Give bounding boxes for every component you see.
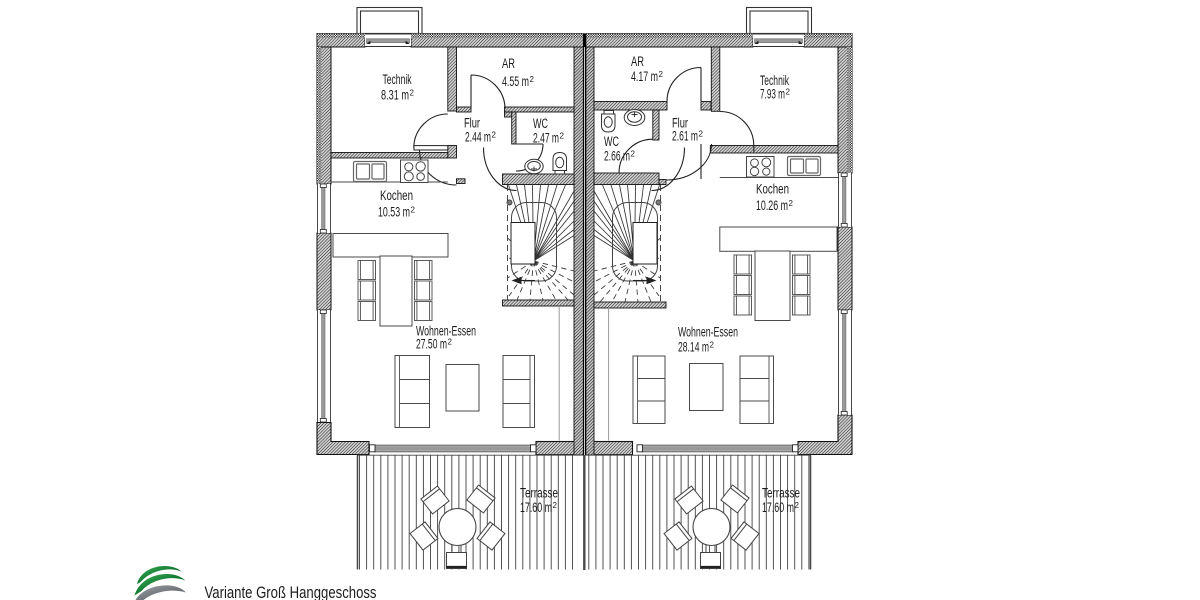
svg-text:Kochen: Kochen	[380, 188, 413, 203]
svg-text:2.61 m: 2.61 m	[672, 129, 698, 144]
svg-text:2: 2	[448, 338, 453, 347]
svg-text:2: 2	[530, 75, 535, 84]
svg-text:2: 2	[659, 70, 664, 79]
svg-text:Technik: Technik	[383, 72, 412, 87]
svg-text:Flur: Flur	[464, 116, 480, 131]
svg-text:2.47 m: 2.47 m	[533, 131, 559, 146]
svg-text:8.31 m: 8.31 m	[381, 88, 409, 103]
svg-text:2: 2	[560, 132, 565, 141]
svg-text:2: 2	[699, 130, 704, 139]
svg-text:WC: WC	[604, 134, 619, 149]
svg-text:2: 2	[710, 341, 715, 350]
svg-text:2: 2	[786, 88, 791, 97]
svg-text:2: 2	[631, 150, 636, 159]
svg-text:2.66 m: 2.66 m	[604, 149, 630, 164]
svg-text:10.53 m: 10.53 m	[378, 205, 410, 220]
svg-text:AR: AR	[502, 56, 515, 71]
svg-text:27.50 m: 27.50 m	[416, 337, 447, 352]
svg-text:Terrasse: Terrasse	[762, 486, 800, 501]
svg-text:2: 2	[795, 501, 800, 510]
svg-text:Variante Groß Hanggeschoss: Variante Groß Hanggeschoss	[205, 584, 377, 600]
svg-text:2: 2	[789, 199, 794, 208]
svg-text:Kochen: Kochen	[756, 182, 789, 197]
svg-text:WC: WC	[533, 116, 548, 131]
svg-text:4.17 m: 4.17 m	[631, 69, 658, 84]
svg-text:17.60 m: 17.60 m	[520, 500, 552, 515]
svg-text:17.60 m: 17.60 m	[762, 500, 794, 515]
svg-text:7.93 m: 7.93 m	[760, 87, 785, 102]
svg-text:AR: AR	[631, 54, 644, 69]
svg-text:2: 2	[410, 89, 415, 98]
svg-text:10.26 m: 10.26 m	[756, 198, 788, 213]
svg-text:2: 2	[553, 501, 558, 510]
svg-text:Wohnen-Essen: Wohnen-Essen	[678, 325, 738, 340]
svg-text:Terrasse: Terrasse	[520, 486, 558, 501]
svg-text:28.14 m: 28.14 m	[678, 340, 709, 355]
svg-text:2.44 m: 2.44 m	[465, 130, 491, 145]
svg-text:2: 2	[411, 206, 416, 215]
svg-text:4.55 m: 4.55 m	[502, 74, 529, 89]
svg-text:2: 2	[492, 131, 497, 140]
